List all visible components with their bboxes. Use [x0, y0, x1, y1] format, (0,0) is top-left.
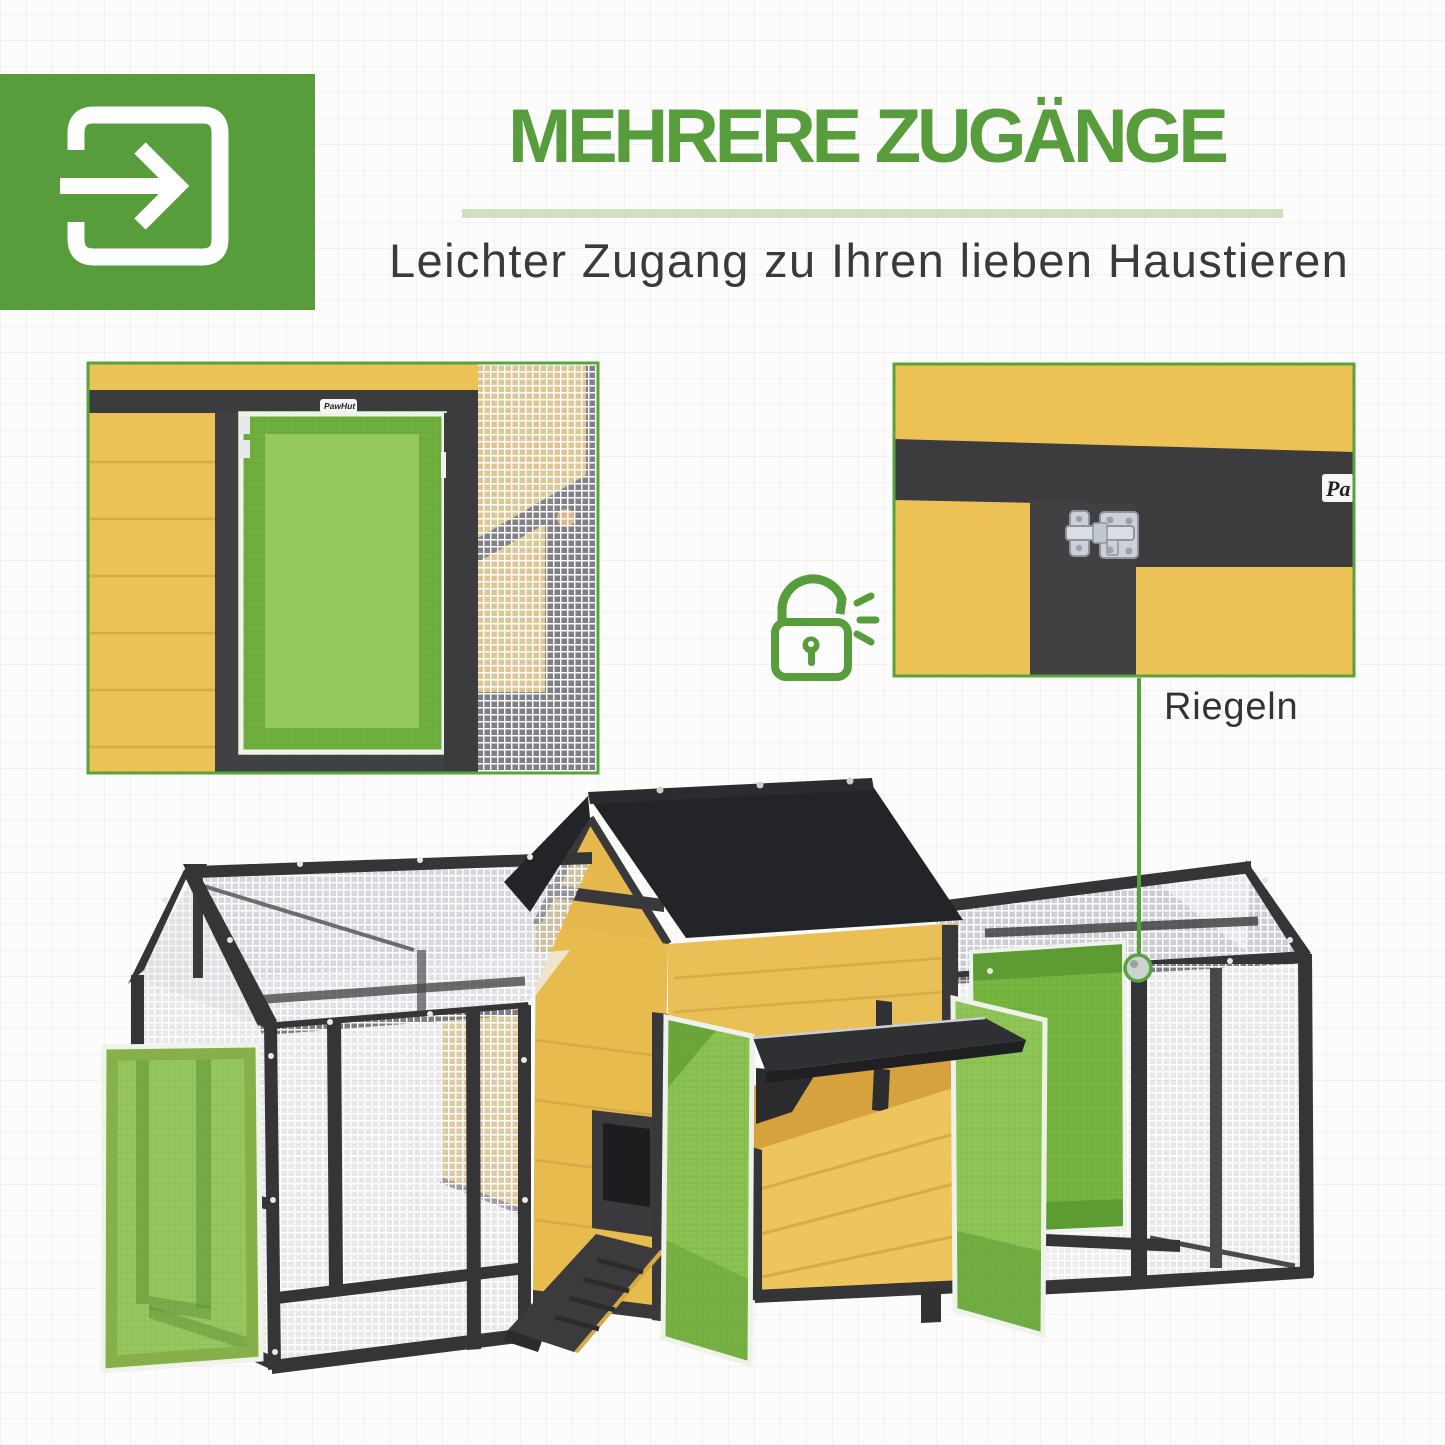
- svg-text:PawHut: PawHut: [324, 401, 356, 411]
- svg-text:Pa: Pa: [1325, 476, 1350, 501]
